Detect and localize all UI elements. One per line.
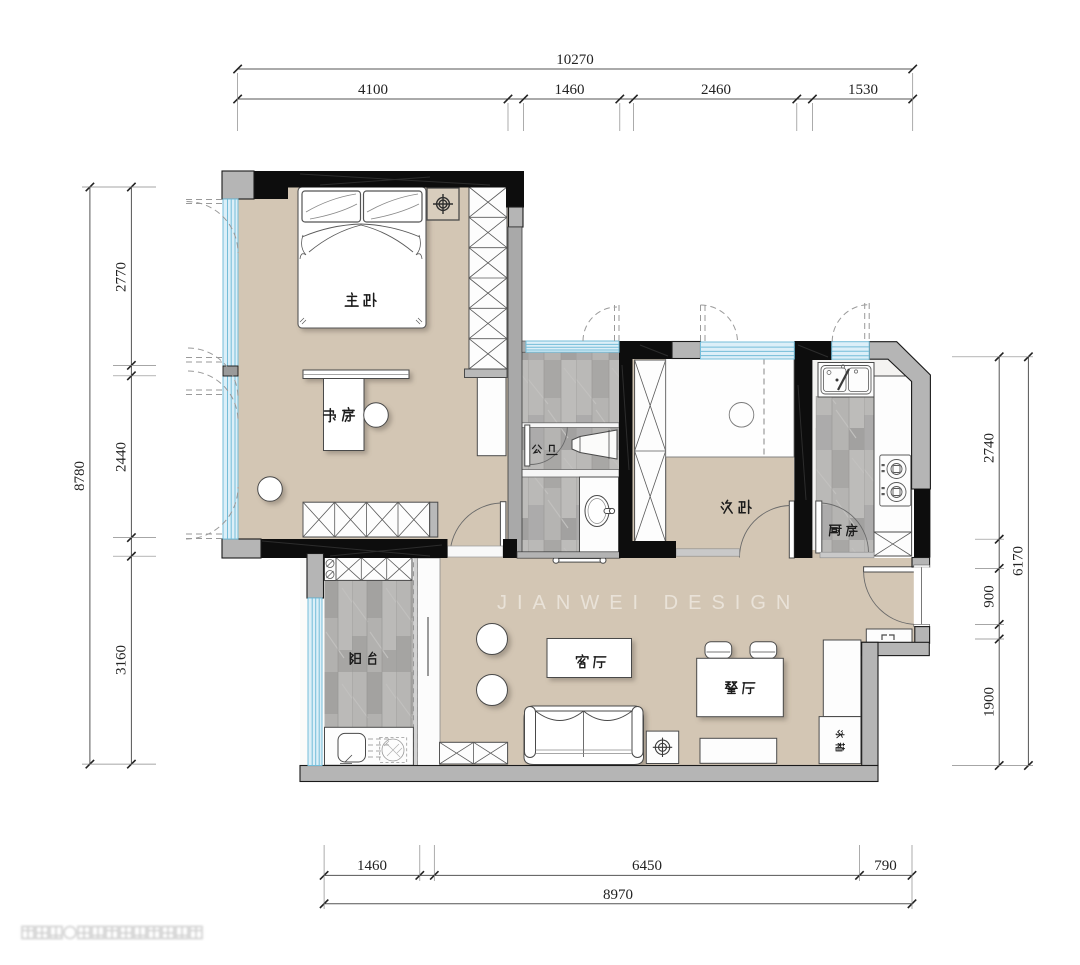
svg-text:790: 790	[874, 858, 897, 874]
svg-text:6450: 6450	[632, 858, 662, 874]
svg-text:1530: 1530	[848, 82, 878, 98]
svg-text:8970: 8970	[603, 887, 633, 903]
svg-text:2740: 2740	[982, 433, 998, 463]
svg-text:2770: 2770	[114, 262, 130, 292]
svg-text:2440: 2440	[114, 442, 130, 472]
svg-text:1460: 1460	[357, 858, 387, 874]
svg-text:3160: 3160	[114, 645, 130, 675]
svg-text:4100: 4100	[358, 82, 388, 98]
svg-text:10270: 10270	[556, 52, 594, 68]
svg-text:JIANWEI DESIGN: JIANWEI DESIGN	[497, 592, 800, 614]
svg-text:900: 900	[982, 585, 998, 608]
svg-text:1900: 1900	[982, 687, 998, 717]
svg-text:8780: 8780	[72, 461, 88, 491]
svg-text:6170: 6170	[1011, 546, 1027, 576]
svg-text:1460: 1460	[555, 82, 585, 98]
svg-text:2460: 2460	[701, 82, 731, 98]
